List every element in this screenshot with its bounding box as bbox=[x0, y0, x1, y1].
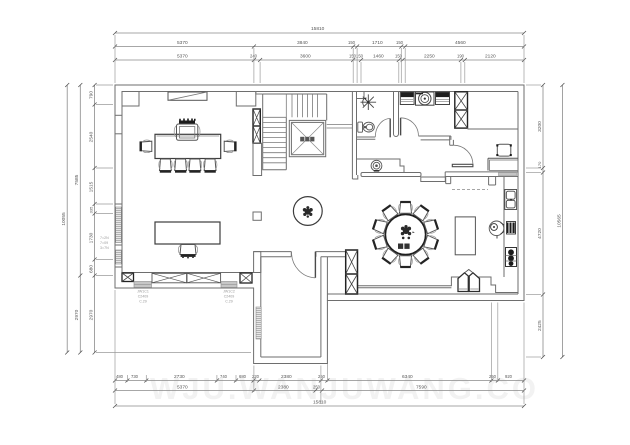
svg-text:190: 190 bbox=[457, 54, 465, 59]
svg-text:150: 150 bbox=[396, 40, 404, 45]
svg-text:3840: 3840 bbox=[297, 40, 308, 46]
svg-text:335: 335 bbox=[89, 206, 94, 213]
svg-text:C.29: C.29 bbox=[225, 300, 233, 304]
svg-text:5370: 5370 bbox=[177, 40, 188, 46]
svg-text:3=7N: 3=7N bbox=[100, 246, 109, 250]
svg-text:10565: 10565 bbox=[557, 214, 563, 228]
svg-text:7=09: 7=09 bbox=[100, 241, 108, 245]
svg-text:15810: 15810 bbox=[311, 26, 325, 32]
svg-text:250: 250 bbox=[318, 374, 326, 379]
svg-text:1515: 1515 bbox=[89, 181, 95, 192]
svg-text:1460: 1460 bbox=[373, 54, 384, 60]
svg-text:170: 170 bbox=[537, 161, 542, 168]
svg-text:7=2N: 7=2N bbox=[100, 236, 109, 240]
svg-text:7590: 7590 bbox=[416, 385, 427, 391]
svg-text:2970: 2970 bbox=[74, 309, 80, 320]
svg-text:C2409: C2409 bbox=[224, 295, 235, 299]
svg-text:4560: 4560 bbox=[455, 40, 466, 46]
svg-text:4720: 4720 bbox=[537, 228, 543, 239]
svg-text:730: 730 bbox=[131, 374, 139, 379]
svg-text:920: 920 bbox=[505, 374, 513, 379]
svg-text:JW1C2: JW1C2 bbox=[223, 290, 235, 294]
svg-text:480: 480 bbox=[116, 374, 124, 379]
svg-text:150: 150 bbox=[348, 40, 356, 45]
svg-text:2120: 2120 bbox=[485, 54, 496, 60]
svg-text:C.29: C.29 bbox=[139, 300, 147, 304]
svg-text:2970: 2970 bbox=[89, 309, 95, 320]
svg-text:150150: 150150 bbox=[349, 54, 364, 59]
svg-text:2380: 2380 bbox=[278, 385, 289, 391]
svg-text:5370: 5370 bbox=[177, 54, 188, 60]
svg-text:C2409: C2409 bbox=[138, 295, 149, 299]
svg-text:1730: 1730 bbox=[89, 232, 95, 243]
svg-text:10055: 10055 bbox=[61, 212, 67, 226]
svg-text:740: 740 bbox=[220, 374, 228, 379]
svg-text:790: 790 bbox=[89, 91, 95, 99]
svg-text:2380: 2380 bbox=[281, 374, 292, 380]
svg-text:2250: 2250 bbox=[424, 54, 435, 60]
svg-text:220: 220 bbox=[252, 374, 260, 379]
svg-text:2425: 2425 bbox=[537, 320, 543, 331]
svg-text:15810: 15810 bbox=[313, 400, 327, 406]
svg-text:680: 680 bbox=[89, 265, 95, 273]
svg-text:2730: 2730 bbox=[174, 374, 185, 380]
svg-text:3600: 3600 bbox=[300, 54, 311, 60]
svg-text:5370: 5370 bbox=[177, 385, 188, 391]
svg-text:250: 250 bbox=[489, 374, 497, 379]
svg-text:1710: 1710 bbox=[372, 40, 383, 46]
svg-text:7585: 7585 bbox=[74, 174, 80, 185]
svg-text:WJU.WANJUWANG.CO: WJU.WANJUWANG.CO bbox=[150, 371, 539, 406]
svg-text:JW1C1: JW1C1 bbox=[137, 290, 149, 294]
svg-text:6340: 6340 bbox=[402, 374, 413, 380]
svg-text:680: 680 bbox=[239, 374, 247, 379]
svg-text:3200: 3200 bbox=[537, 121, 543, 132]
svg-text:2540: 2540 bbox=[89, 131, 95, 142]
svg-text:250: 250 bbox=[313, 385, 321, 390]
